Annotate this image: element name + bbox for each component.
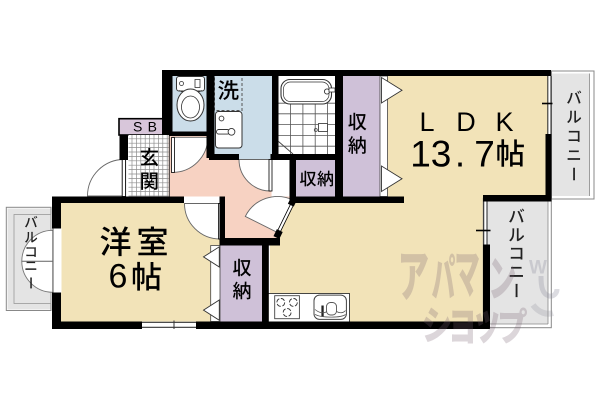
svg-text:.: .	[455, 133, 465, 174]
svg-text:6: 6	[109, 258, 128, 296]
svg-text:D: D	[456, 107, 476, 137]
svg-text:L: L	[419, 107, 434, 137]
svg-text:W: W	[529, 258, 547, 279]
svg-text:K: K	[495, 107, 513, 137]
svg-text:S: S	[133, 119, 142, 135]
svg-text:3: 3	[431, 133, 452, 174]
svg-text:1: 1	[410, 133, 431, 174]
svg-text:7: 7	[474, 133, 495, 174]
svg-text:B: B	[148, 119, 157, 135]
